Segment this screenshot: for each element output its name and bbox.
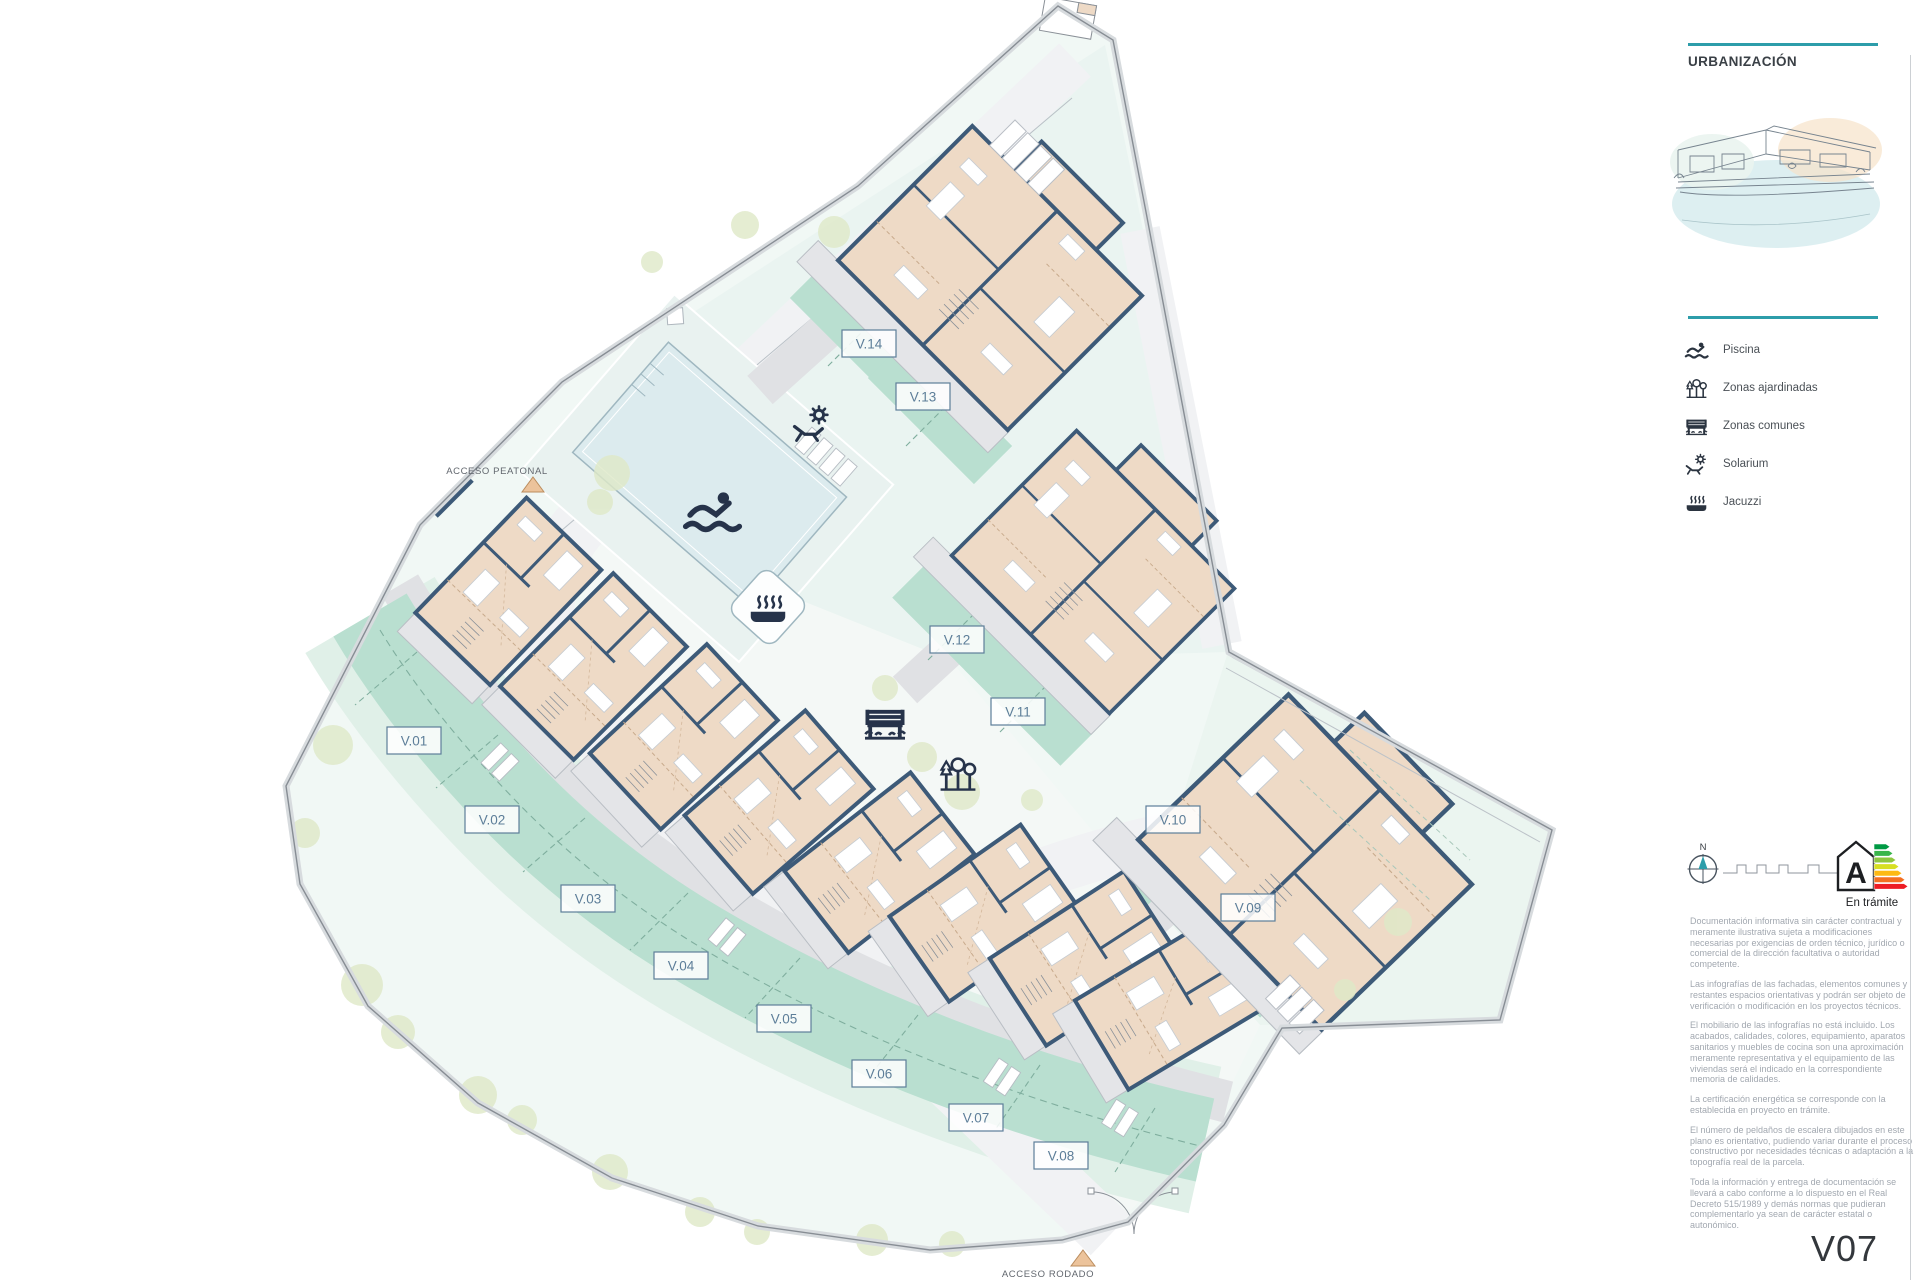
sheet-code: V07	[1660, 1228, 1878, 1270]
solarium-icon	[1684, 452, 1709, 477]
legend-item-piscina: Piscina	[1684, 338, 1894, 362]
svg-text:ACCESO RODADO: ACCESO RODADO	[1002, 1269, 1094, 1280]
villa-label: V.14	[856, 337, 883, 352]
villa-label: V.04	[668, 959, 695, 974]
note-paragraph: Documentación informativa sin carácter c…	[1690, 916, 1914, 970]
note-paragraph: El mobiliario de las infografías no está…	[1690, 1020, 1914, 1085]
villa-label: V.02	[479, 813, 506, 828]
legend-item-jacuzzi: Jacuzzi	[1684, 490, 1894, 514]
divider	[1688, 316, 1878, 319]
page-title: URBANIZACIÓN	[1688, 54, 1797, 69]
svg-text:ACCESO PEATONAL: ACCESO PEATONAL	[446, 466, 548, 477]
villa-label: V.06	[866, 1067, 893, 1082]
note-paragraph: La certificación energética se correspon…	[1690, 1094, 1914, 1116]
villa-label: V.13	[910, 390, 937, 405]
villa-label: V.03	[575, 892, 602, 907]
note-paragraph: Las infografías de las fachadas, element…	[1690, 979, 1914, 1011]
compass-icon: N	[1688, 842, 1719, 884]
legend-label: Zonas ajardinadas	[1723, 382, 1818, 394]
energy-rating-icon: A	[1838, 842, 1908, 890]
energy-status: En trámite	[1846, 897, 1898, 909]
villa-label: V.12	[944, 633, 971, 648]
legend-item-solarium: Solarium	[1684, 452, 1894, 476]
villa-label: V.01	[401, 734, 428, 749]
access-road: ACCESO RODADO	[1002, 1250, 1095, 1280]
trees-icon	[1684, 376, 1709, 401]
svg-text:A: A	[1845, 857, 1867, 890]
note-paragraph: El número de peldaños de escalera dibuja…	[1690, 1125, 1914, 1168]
plan-meta-row: N A En trám	[1660, 832, 1920, 912]
legend-item-zonas-comunes: Zonas comunes	[1684, 414, 1894, 438]
villa-label: V.08	[1048, 1149, 1075, 1164]
villa-label: V.07	[963, 1111, 990, 1126]
divider	[1688, 43, 1878, 46]
legend-label: Solarium	[1723, 458, 1768, 470]
sheet: ACCESO PEATONAL ACCESO RODADO V.01 V.02 …	[0, 0, 1920, 1280]
site-plan: ACCESO PEATONAL ACCESO RODADO V.01 V.02 …	[0, 0, 1660, 1280]
bench-icon	[1684, 414, 1709, 439]
swimmer-icon	[1684, 338, 1709, 363]
jacuzzi-icon	[1684, 490, 1709, 515]
villa-label: V.05	[771, 1012, 798, 1027]
scale-bar	[1723, 865, 1845, 873]
sidebar: URBANIZACIÓN Piscina	[1660, 0, 1920, 1280]
disclaimer-notes: Documentación informativa sin carácter c…	[1690, 916, 1914, 1240]
villa-label: V.10	[1160, 813, 1187, 828]
legend: Piscina Zonas ajardinadas Zonas comunes …	[1684, 338, 1894, 528]
legend-label: Jacuzzi	[1723, 496, 1761, 508]
urbanization-render	[1670, 92, 1882, 254]
note-paragraph: Toda la información y entrega de documen…	[1690, 1177, 1914, 1231]
legend-item-zonas-ajardinadas: Zonas ajardinadas	[1684, 376, 1894, 400]
villa-label: V.11	[1005, 705, 1031, 720]
villa-label: V.09	[1235, 901, 1262, 916]
svg-text:N: N	[1700, 842, 1707, 853]
page-edge-line	[1910, 55, 1911, 1280]
legend-label: Zonas comunes	[1723, 420, 1805, 432]
legend-label: Piscina	[1723, 344, 1760, 356]
